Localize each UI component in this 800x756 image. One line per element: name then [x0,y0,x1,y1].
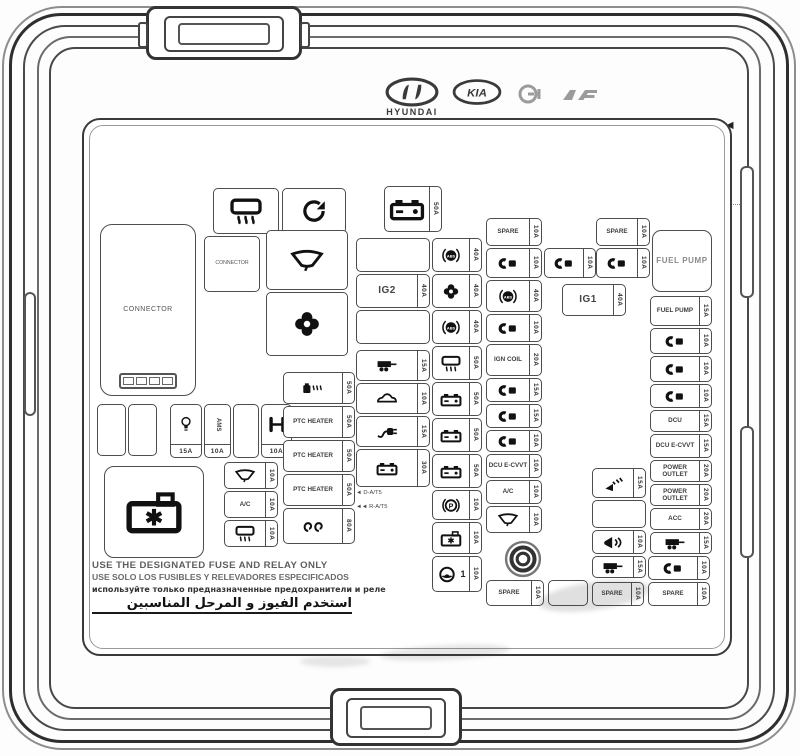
cell-body: A/C [225,492,265,517]
cell-body [433,523,469,553]
cell-body: FUEL PUMP [653,231,711,291]
battery-star-icon [125,489,183,535]
cell-body [593,557,633,577]
amp-rating: 50A [342,475,354,505]
dcu-ecvvt-cell: DCU E-CVVT15A [650,434,712,458]
ptc-heater-cell: PTC HEATER50A [283,440,355,472]
rear-defrost-icon [440,355,462,372]
amp-rating: 50A [469,383,481,415]
cell-body [593,469,633,497]
cell-body [357,239,429,271]
cell-body: ABS [433,311,469,343]
amp-rating: 10A [699,385,711,407]
wiper-icon [497,511,519,528]
amp-rating: 10A [697,583,709,605]
cell-body [129,405,156,455]
cell-body: ABS [433,239,469,271]
cell-body [284,509,342,543]
steering-cell: 110A [432,556,482,592]
battery-cell: 50A [432,454,482,488]
ac-cell: A/C10A [486,480,542,504]
horn-cell: 10A [592,530,646,554]
cell-body [651,329,699,353]
cell-body [433,347,469,379]
amp-rating: 20A [529,345,541,375]
fuse-icon [497,255,519,272]
cell-body: POWER OUTLET [651,485,699,505]
amp-rating: 50A [469,419,481,451]
dcu-ecvvt-cell: DCU E-CVVT10A [486,454,542,478]
cell-body [487,249,529,277]
amp-rating: 20A [699,461,711,481]
cell-label: SPARE [487,589,531,596]
fuse-cell: 15A [486,404,542,428]
cell-label: SPARE [649,590,697,597]
cell-label: PTC HEATER [284,418,342,425]
ptc-heater-cell: PTC HEATER50A [283,406,355,438]
battery-icon [440,391,462,408]
blank-cell [233,404,259,458]
cell-body [267,293,347,355]
at-note: ◄ D-A/T5◄◄ R-A/T5 [356,490,430,516]
cell-body [385,187,429,231]
cell-body [487,507,529,532]
power-outlet-cell: POWER OUTLET20A [650,460,712,482]
amp-rating: 50A [342,407,354,437]
cell-label: IG1 [563,294,613,306]
fuse-icon [664,361,686,378]
wiper-fuse-cell: 10A [224,462,278,489]
abs-icon: ABS [440,319,462,336]
amp-rating: 10A [265,492,277,517]
cell-label: IGN COIL [487,356,529,363]
spare-cell: SPARE10A [596,218,650,246]
fuse-box-cover-diagram: HYUNDAI KIA 91955-S1040 ►PP [0,0,800,756]
fan-cell [266,292,348,356]
amp-rating: 15A [699,411,711,431]
amp-rating: 10A [637,219,649,245]
amp-rating: 40A [469,239,481,271]
cell-body [649,557,697,579]
amp-rating: 15A [633,557,645,577]
cell-body [593,531,633,553]
fuel-pump-relay: FUEL PUMP [652,230,712,292]
ign-coil-cell: IGN COIL20A [486,344,542,376]
fuse-icon [664,333,686,350]
cell-body [357,351,417,380]
parking-brake-cell: P10A [432,490,482,520]
cell-label: ◄ D-A/T5 [356,490,430,497]
cell-label: POWER OUTLET [651,488,699,502]
cell-body [433,275,469,307]
cell-label: IG2 [357,285,417,297]
fuel-pump-cell: FUEL PUMP15A [650,296,712,326]
amp-rating: 40A [529,281,541,311]
svg-text:ABS: ABS [447,253,456,258]
cell-body: CONNECTOR [101,225,195,395]
fuse-icon [662,560,684,577]
amp-rating: 50A [342,441,354,471]
blank-cell [97,404,126,456]
fuse-icon [497,320,519,337]
cell-body [267,231,347,289]
cell-body [487,315,529,341]
warning-en: USE THE DESIGNATED FUSE AND RELAY ONLY [92,560,434,571]
blank-cell [128,404,157,456]
amp-rating: 15A [529,405,541,427]
amp-rating: 10A [699,357,711,381]
fuse-icon [606,255,628,272]
plug-cell: 15A [356,416,430,447]
cell-body: SPARE [649,583,697,605]
abs-cell: ABS40A [486,280,542,312]
cell-body [357,384,417,413]
amp-rating: 40A [469,311,481,343]
fuse-icon [497,408,519,425]
rotate-cell [282,188,346,234]
trailer-icon [602,559,624,576]
amp-rating: 10A [633,531,645,553]
battery-star-icon [440,530,462,547]
connector-pins [119,373,177,389]
cell-body: P [433,491,469,519]
rear-defrost-icon [234,525,256,542]
cell-body [283,189,345,233]
trailer-cell: 15A [356,350,430,381]
wiper-icon [289,246,325,274]
fuse-icon [553,255,575,272]
cell-label: SPARE [487,228,529,235]
cell-body [651,357,699,381]
fuse-cell: 10A [650,384,712,408]
amp-rating: 40A [469,275,481,307]
cell-body: PTC HEATER [284,407,342,437]
amp-rating: 80A [342,509,354,543]
amp-rating: 10A [529,431,541,451]
ac-cell: A/C10A [224,491,278,518]
amp-rating: 10A [469,523,481,553]
fuse-cell: 10A [648,556,710,580]
spare-cell: SPARE10A [486,218,542,246]
spare-cell: SPARE10A [592,582,644,606]
p-brake-icon: P [440,497,462,514]
cell-label: DCU E-CVVT [487,462,529,469]
amp-rating: 10A [529,455,541,477]
amp-rating: 10A [469,491,481,519]
amp-rating: 50A [342,373,354,403]
fan-fuse-cell: 40A [432,274,482,308]
abs-cell: ABS40A [432,310,482,344]
cell-body [500,538,546,580]
ptc-heater-cell: PTC HEATER50A [283,474,355,506]
warning-ru: используйте только предназначенные предо… [92,585,434,594]
fuel-heat-icon [302,380,324,397]
cell-body [357,450,417,486]
cell-body: PTC HEATER [284,441,342,471]
warning-es: USE SOLO LOS FUSIBLES Y RELEVADORES ESPE… [92,572,434,582]
cell-body [357,311,429,343]
battery-icon [440,427,462,444]
amp-rating: 40A [613,285,625,315]
cell-body [433,419,469,451]
amp-rating: 15A [699,297,711,325]
cell-label: A/C [225,501,265,508]
amp-rating: 10A [697,557,709,579]
fuse-icon [497,382,519,399]
cell-body [105,467,203,557]
amp-rating: 15A [171,444,201,457]
blank-cell [592,500,646,528]
cell-body: IG2 [357,275,417,307]
amp-rating: 50A [469,347,481,379]
warning-ar: استخدم الفيوز و المرحل المناسبين [92,596,352,614]
cell-label: PTC HEATER [284,486,342,493]
cell-suffix: 1 [460,569,465,579]
cell-label: SPARE [593,590,631,597]
cell-body [225,521,265,546]
fuse-cell: 15A [486,378,542,402]
fuse-cell: 10A [486,248,542,278]
nut-icon [503,539,543,579]
connector-cell: CONNECTOR [204,236,260,292]
horn-icon [602,534,624,551]
cell-body: PTC HEATER [284,475,342,505]
amp-rating: 10A [265,463,277,488]
ig2-cell: IG240A [356,274,430,308]
cell-body: ABS [487,281,529,311]
amp-rating: 10A [637,249,649,277]
cell-body: SPARE [487,219,529,245]
battery-cell: 50A [432,382,482,416]
amp-rating: 10A [529,507,541,532]
cell-body [651,533,699,553]
amp-rating: 20A [699,485,711,505]
battery-icon [440,463,462,480]
battery-star-cell: 10A [432,522,482,554]
power-outlet-cell: POWER OUTLET20A [650,484,712,506]
amp-rating: 15A [699,533,711,553]
fuse-cell: 10A [650,356,712,382]
bulb-cell: 15A [170,404,202,458]
battery-cell: 50A [432,418,482,452]
svg-text:ABS: ABS [504,294,513,299]
fan-icon [440,283,462,300]
blank-cell [356,238,430,272]
cell-body [487,431,529,451]
svg-text:P: P [449,502,454,510]
cell-body: POWER OUTLET [651,461,699,481]
battery-icon [376,460,398,477]
fan-icon [289,310,325,338]
amp-rating: 40A [417,275,429,307]
amp-rating: 15A [417,417,429,446]
abs-icon: ABS [497,288,519,305]
cell-label: DCU [651,417,699,424]
amp-rating: 10A [529,219,541,245]
cell-body: DCU E-CVVT [487,455,529,477]
cell-body: DCU E-CVVT [651,435,699,457]
amp-rating: 10A [529,249,541,277]
cell-body [98,405,125,455]
cell-body: AMS [205,405,230,444]
cell-label: DCU E-CVVT [651,442,699,449]
wiper-icon [234,467,256,484]
amp-rating: 10A [699,329,711,353]
fuel-heater-cell: 50A [283,372,355,404]
cell-body [549,581,587,605]
cell-label: CONNECTOR [101,306,195,314]
amp-rating: 15A [417,351,429,380]
fuse-cell: 10A [650,328,712,354]
dcu-cell: DCU15A [650,410,712,432]
cell-body: SPARE [487,581,531,605]
trailer-cell: 15A [592,556,646,578]
connector-box: CONNECTOR [100,224,196,396]
warning-block: USE THE DESIGNATED FUSE AND RELAY ONLY U… [92,560,434,614]
cell-body [214,189,278,233]
mounting-stud [500,538,546,580]
cell-body [487,379,529,401]
amp-rating: 10A [583,249,595,277]
cell-body [433,455,469,487]
cell-body: SPARE [597,219,637,245]
cell-label: FUEL PUMP [651,307,699,314]
cell-body: CONNECTOR [205,237,259,291]
blank-cell [356,310,430,344]
spare-cell: SPARE10A [648,582,710,606]
ams-cell: AMS10A [204,404,231,458]
fuse-cell: 10A [486,314,542,342]
amp-rating: 10A [531,581,543,605]
ig1-cell: IG140A [562,284,626,316]
amp-rating: 15A [529,379,541,401]
plug-icon [376,423,398,440]
battery-feed-cell: 50A [384,186,442,232]
svg-text:ABS: ABS [447,325,456,330]
cell-label: CONNECTOR [205,261,259,267]
cell-body: ACC [651,509,699,529]
fuse-cell: 10A [596,248,650,278]
amp-rating: 10A [469,557,481,591]
abs-icon: ABS [440,247,462,264]
cell-body: ◄ D-A/T5◄◄ R-A/T5 [356,490,430,516]
amp-rating: 10A [529,481,541,503]
amp-rating: 50A [469,455,481,487]
trailer-icon [664,535,686,552]
cell-body [545,249,583,277]
trailer-icon [376,357,398,374]
cell-body [234,405,258,457]
cell-body [597,249,637,277]
cell-label: SPARE [597,228,637,235]
cell-body [433,383,469,415]
spare-cell: SPARE10A [486,580,544,606]
amp-rating: 10A [417,384,429,413]
amp-rating: 30A [417,450,429,486]
cell-label: FUEL PUMP [653,256,711,265]
cell-body: SPARE [593,583,631,605]
trailer-cell: 15A [650,532,712,554]
cell-body [593,501,645,527]
fuse-icon [664,388,686,405]
amp-rating: 20A [699,509,711,529]
amp-rating: 15A [699,435,711,457]
cell-label: A/C [487,488,529,495]
fuse-cell: 10A [486,430,542,452]
cell-body: 1 [433,557,469,591]
cell-body: FUEL PUMP [651,297,699,325]
rear-defrost-cell [213,188,279,234]
cell-body [171,405,201,444]
cell-body [225,463,265,488]
car-cell: 10A [356,383,430,414]
amp-rating: 10A [529,315,541,341]
cell-body [487,405,529,427]
wiper-fuse-cell: 10A [486,506,542,533]
cell-body: IG1 [563,285,613,315]
cell-body [651,385,699,407]
amp-rating: 10A [205,444,230,457]
battery-icon [389,195,425,223]
car-icon [376,390,398,407]
battery-star-box [104,466,204,558]
acc-cell: ACC20A [650,508,712,530]
cell-label: ACC [651,515,699,522]
wiper-cell [266,230,348,290]
blank-cell [548,580,588,606]
cell-body [284,373,342,403]
defrost-fuse-cell: 50A [432,346,482,380]
cell-label: POWER OUTLET [651,464,699,478]
amp-rating: 10A [631,583,643,605]
glow-plug-cell: 80A [283,508,355,544]
bulb-icon [175,416,197,433]
cell-label: ◄◄ R-A/T5 [356,504,430,511]
cell-body: IGN COIL [487,345,529,375]
cell-label: PTC HEATER [284,452,342,459]
washer-icon [602,475,624,492]
fuse-cell: 10A [544,248,596,278]
cell-body: DCU [651,411,699,431]
abs-cell: ABS40A [432,238,482,272]
amp-rating: 15A [633,469,645,497]
amp-rating: 10A [265,521,277,546]
mirror-defrost-cell: 10A [224,520,278,547]
fuse-cells-layer: 50ACONNECTORCONNECTORIG240A15A10A15A30A◄… [0,0,800,756]
steering-icon [436,566,458,583]
washer-cell: 15A [592,468,646,498]
amp-rating: 50A [429,187,441,231]
cell-label: AMS [214,418,221,431]
glow-plug-icon [302,518,324,535]
cell-body: A/C [487,481,529,503]
fuse-icon [497,433,519,450]
rotate-icon [296,197,332,225]
cell-body [357,417,417,446]
rear-defrost-icon [228,197,264,225]
battery-cell: 30A [356,449,430,487]
